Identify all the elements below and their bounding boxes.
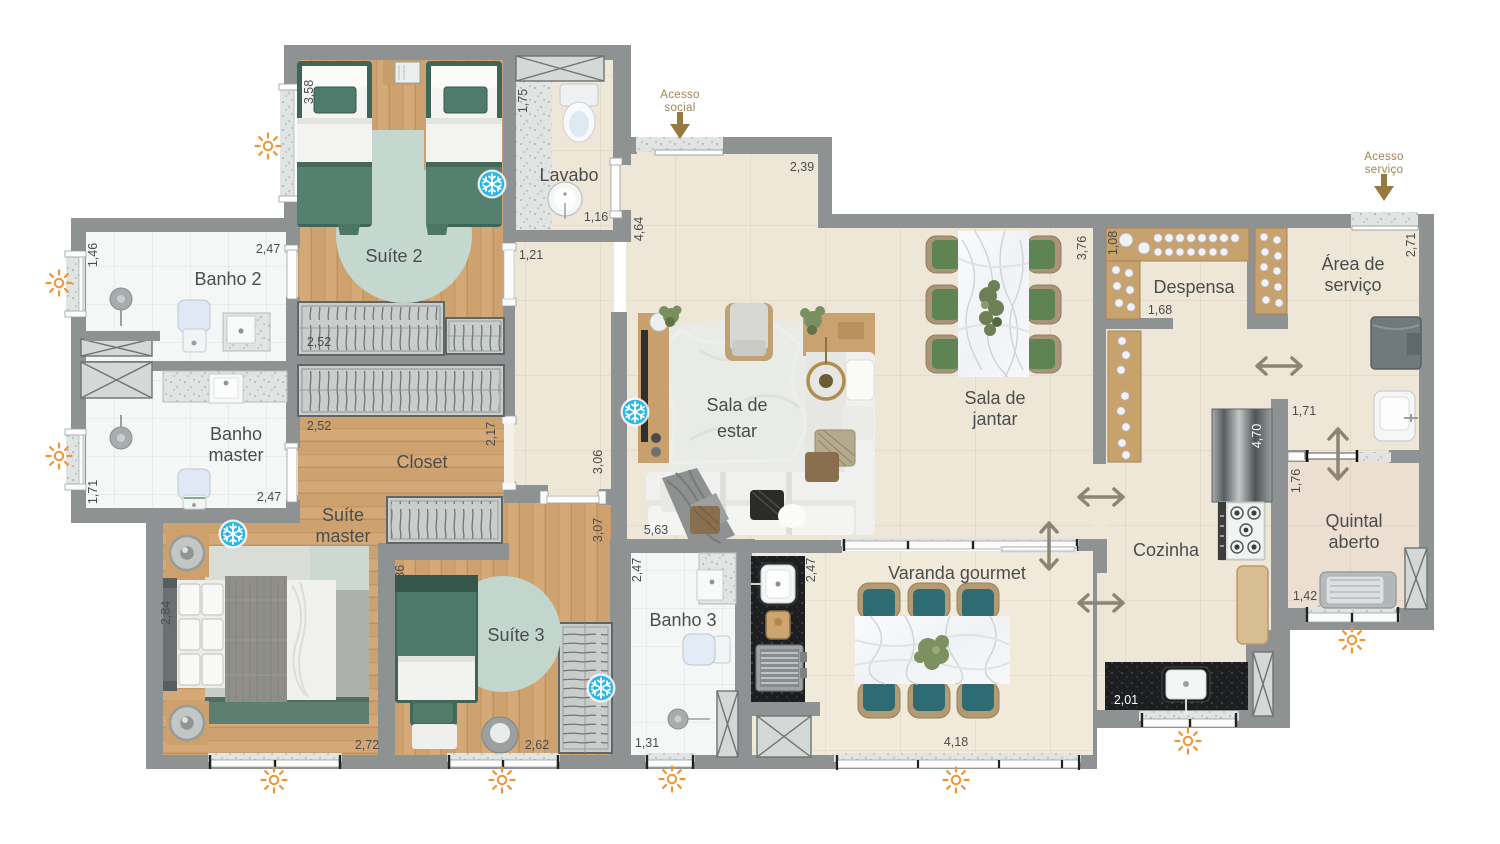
svg-text:Suíte 2: Suíte 2: [365, 246, 422, 266]
svg-text:Banho 3: Banho 3: [649, 610, 716, 630]
svg-text:master: master: [315, 526, 370, 546]
svg-text:1,08: 1,08: [1106, 231, 1120, 255]
svg-text:2,47: 2,47: [256, 242, 280, 256]
svg-text:2,84: 2,84: [159, 601, 173, 625]
svg-text:1,71: 1,71: [1292, 404, 1316, 418]
svg-text:master: master: [208, 445, 263, 465]
svg-text:1,46: 1,46: [86, 243, 100, 267]
svg-text:2,47: 2,47: [257, 490, 281, 504]
svg-text:4,64: 4,64: [632, 217, 646, 241]
svg-text:3,06: 3,06: [591, 450, 605, 474]
svg-text:5,63: 5,63: [644, 523, 668, 537]
svg-text:2,47: 2,47: [804, 558, 818, 582]
svg-text:2,39: 2,39: [790, 160, 814, 174]
svg-text:1,71: 1,71: [86, 480, 100, 504]
svg-text:2,17: 2,17: [484, 422, 498, 446]
svg-text:Sala de: Sala de: [964, 388, 1025, 408]
svg-text:2,01: 2,01: [1114, 693, 1138, 707]
svg-text:1,31: 1,31: [635, 736, 659, 750]
svg-text:3,58: 3,58: [302, 80, 316, 104]
svg-text:Lavabo: Lavabo: [539, 165, 598, 185]
svg-text:4,70: 4,70: [1250, 424, 1264, 448]
svg-text:2,62: 2,62: [525, 738, 549, 752]
svg-text:1,76: 1,76: [1289, 469, 1303, 493]
svg-text:Banho: Banho: [210, 424, 262, 444]
svg-text:Suíte 3: Suíte 3: [487, 625, 544, 645]
svg-text:Acesso: Acesso: [660, 89, 700, 101]
svg-text:2,71: 2,71: [1404, 233, 1418, 257]
svg-text:1,42: 1,42: [1293, 589, 1317, 603]
svg-text:2,52: 2,52: [307, 335, 331, 349]
svg-text:1,68: 1,68: [1148, 303, 1172, 317]
svg-text:Sala de: Sala de: [706, 395, 767, 415]
svg-text:Cozinha: Cozinha: [1133, 540, 1200, 560]
svg-text:2,52: 2,52: [307, 419, 331, 433]
svg-text:Quintal: Quintal: [1325, 511, 1382, 531]
svg-text:2,47: 2,47: [630, 558, 644, 582]
svg-text:Banho 2: Banho 2: [194, 269, 261, 289]
svg-text:Suíte: Suíte: [322, 505, 364, 525]
svg-text:1,16: 1,16: [584, 210, 608, 224]
svg-text:Closet: Closet: [396, 452, 447, 472]
svg-text:Área de: Área de: [1321, 254, 1384, 274]
svg-text:3,07: 3,07: [591, 518, 605, 542]
svg-text:aberto: aberto: [1328, 532, 1379, 552]
svg-text:1,75: 1,75: [516, 89, 530, 113]
svg-text:estar: estar: [717, 421, 757, 441]
svg-text:Despensa: Despensa: [1153, 277, 1235, 297]
svg-text:1,21: 1,21: [519, 248, 543, 262]
svg-text:serviço: serviço: [1324, 275, 1381, 295]
svg-text:jantar: jantar: [971, 409, 1017, 429]
svg-text:Acesso: Acesso: [1364, 151, 1404, 163]
svg-text:Varanda gourmet: Varanda gourmet: [888, 563, 1026, 583]
svg-text:4,18: 4,18: [944, 735, 968, 749]
svg-text:3,76: 3,76: [1075, 236, 1089, 260]
svg-text:2,36: 2,36: [393, 565, 407, 589]
svg-text:2,72: 2,72: [355, 738, 379, 752]
